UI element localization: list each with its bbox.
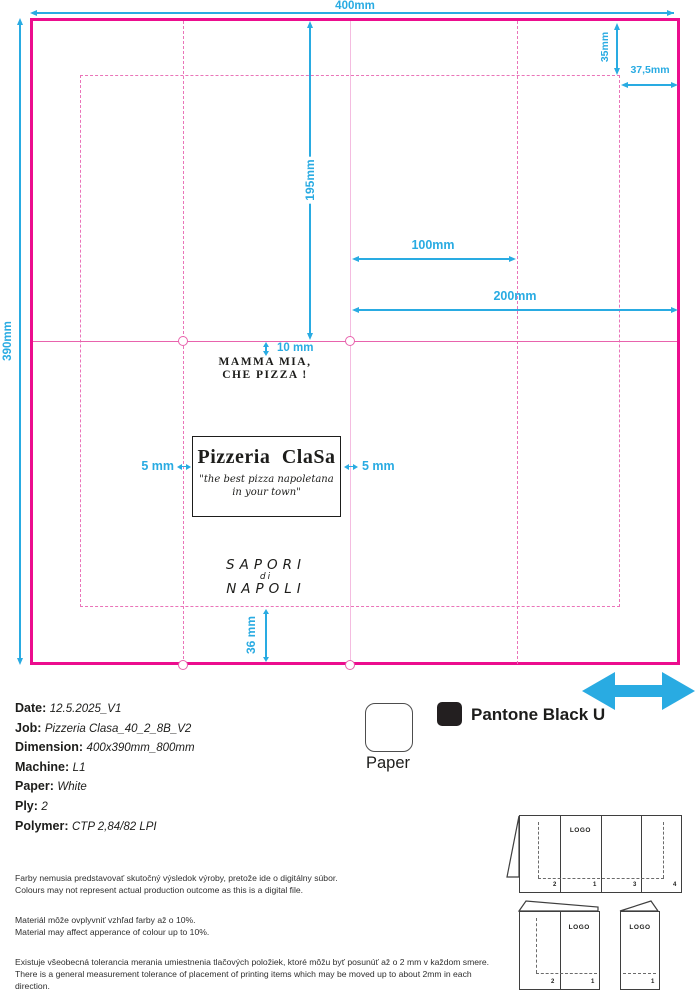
- arrow-right-icon: [509, 256, 516, 262]
- dim-37-5-label: 37,5mm: [620, 64, 680, 76]
- disclaimer-colour: Farby nemusia predstavovať skutočný výsl…: [15, 873, 495, 896]
- logo-tagline-line2: in your town": [193, 486, 340, 499]
- dim-400-shaft: [36, 12, 674, 14]
- spec-block: Date: 12.5.2025_V1 Job: Pizzeria Clasa_4…: [15, 702, 345, 839]
- spec-row-ply: Ply: 2: [15, 800, 345, 814]
- panel-number: 2: [551, 979, 554, 985]
- spec-value: 2: [41, 801, 47, 813]
- spec-label: Dimension:: [15, 740, 83, 754]
- spec-row-date: Date: 12.5.2025_V1: [15, 702, 345, 716]
- logo-title: Pizzeria ClaSa: [193, 446, 340, 469]
- panel-number: 1: [593, 882, 596, 888]
- fold-dash-horizontal: [536, 973, 597, 974]
- spec-row-job: Job: Pizzeria Clasa_40_2_8B_V2: [15, 722, 345, 736]
- dim-390-label: 390mm: [2, 321, 14, 361]
- fold-dash-horizontal: [538, 878, 664, 879]
- dim-195-label: 195mm: [303, 156, 317, 203]
- spec-label: Machine:: [15, 760, 69, 774]
- spec-value: White: [57, 781, 86, 793]
- fold-diagram-folded: LOGO 1: [620, 911, 660, 990]
- diagram-logo-label: LOGO: [560, 827, 600, 834]
- disclaimer-en: Material may affect apperance of colour …: [15, 927, 495, 939]
- spec-value: 400x390mm_800mm: [87, 742, 195, 754]
- arrow-down-icon: [614, 68, 620, 75]
- fold-dash-horizontal: [623, 973, 656, 974]
- dim-100-shaft: [358, 258, 510, 260]
- disclaimer-sk: Farby nemusia predstavovať skutočný výsl…: [15, 873, 495, 885]
- paper-label: Paper: [353, 754, 423, 773]
- middle-fold-line: [33, 341, 677, 343]
- slogan-line1: MAMMA MIA,: [165, 356, 365, 369]
- arrow-down-icon: [307, 333, 313, 340]
- back-text-line3: NAPOLI: [196, 582, 336, 596]
- dim-36-shaft: [265, 614, 267, 658]
- arrow-right-icon: [186, 464, 191, 470]
- pantone-swatch: [437, 702, 462, 726]
- dim-200-shaft: [358, 309, 672, 311]
- panel-divider: [601, 816, 602, 892]
- disclaimer-material: Materiál môže ovplyvniť vzhľad farby až …: [15, 915, 495, 938]
- spec-value: CTP 2,84/82 LPI: [72, 821, 157, 833]
- dim-10-label: 10 mm: [277, 342, 313, 354]
- pantone-label: Pantone Black U: [471, 705, 605, 725]
- panel-divider: [641, 816, 642, 892]
- spec-row-dimension: Dimension: 400x390mm_800mm: [15, 741, 345, 755]
- fold-dash-vertical: [663, 822, 664, 878]
- fold-dash-vertical: [538, 822, 539, 878]
- arrow-right-icon: [671, 307, 678, 313]
- paper-swatch: [365, 703, 413, 752]
- dim-200-label: 200mm: [465, 289, 565, 303]
- back-text-line1: SAPORI: [196, 558, 336, 572]
- logo-tagline-line1: "the best pizza napoletana: [193, 473, 340, 486]
- disclaimer-tolerance: Existuje všeobecná tolerancia merania um…: [15, 957, 495, 992]
- spec-label: Job:: [15, 721, 41, 735]
- disclaimer-block: Farby nemusia predstavovať skutočný výsl…: [15, 873, 495, 1000]
- arrow-right-icon: [353, 464, 358, 470]
- dim-35-label: 35mm: [599, 32, 611, 62]
- panel-number: 1: [651, 979, 654, 985]
- registration-circle: [345, 336, 355, 346]
- spec-label: Polymer:: [15, 819, 69, 833]
- disclaimer-en: There is a general measurement tolerance…: [15, 969, 495, 992]
- dim-36-label: 36 mm: [244, 614, 258, 656]
- spec-value: Pizzeria Clasa_40_2_8B_V2: [45, 723, 191, 735]
- spec-value: L1: [73, 762, 86, 774]
- resize-arrow-right-head: [662, 672, 695, 710]
- diagram-logo-label: LOGO: [560, 924, 600, 931]
- disclaimer-sk: Existuje všeobecná tolerancia merania um…: [15, 957, 495, 969]
- spec-row-paper: Paper: White: [15, 780, 345, 794]
- dim-390-shaft: [19, 24, 21, 659]
- spec-label: Ply:: [15, 799, 38, 813]
- dim-5-right-label: 5 mm: [362, 459, 395, 473]
- panel-number: 3: [633, 882, 636, 888]
- logo-box: Pizzeria ClaSa "the best pizza napoletan…: [192, 436, 341, 517]
- back-text: SAPORI di NAPOLI: [196, 558, 336, 596]
- arrow-down-icon: [263, 657, 269, 662]
- dim-37-5-shaft: [627, 84, 673, 86]
- fold-line-vertical-right: [517, 21, 518, 664]
- panel-number: 2: [553, 882, 556, 888]
- spec-label: Date:: [15, 701, 46, 715]
- registration-circle: [345, 660, 355, 670]
- slogan-line2: CHE PIZZA !: [165, 369, 365, 382]
- arrow-down-icon: [17, 658, 23, 665]
- disclaimer-sk: Materiál môže ovplyvniť vzhľad farby až …: [15, 915, 495, 927]
- registration-circle: [178, 660, 188, 670]
- dim-400-label: 400mm: [30, 0, 680, 12]
- fold-dash-vertical: [536, 918, 537, 973]
- print-proof-sheet: 400mm 390mm 195mm 35mm 37,5mm 100mm 200m…: [0, 0, 700, 1000]
- panel-number: 4: [673, 882, 676, 888]
- resize-arrow-bar: [610, 685, 667, 697]
- disclaimer-en: Colours may not represent actual product…: [15, 885, 495, 897]
- spec-row-machine: Machine: L1: [15, 761, 345, 775]
- slogan-text: MAMMA MIA, CHE PIZZA !: [165, 356, 365, 381]
- fold-diagram-unfolded: LOGO 2 1 3 4: [519, 815, 682, 893]
- dim-100-label: 100mm: [383, 238, 483, 252]
- fold-diagram-bifold: LOGO 2 1: [519, 911, 600, 990]
- dim-35-shaft: [616, 29, 618, 69]
- registration-circle: [178, 336, 188, 346]
- spec-row-polymer: Polymer: CTP 2,84/82 LPI: [15, 820, 345, 834]
- diagram-logo-label: LOGO: [621, 924, 659, 931]
- dim-5-left-label: 5 mm: [130, 459, 174, 473]
- arrow-right-icon: [671, 82, 678, 88]
- spec-label: Paper:: [15, 779, 54, 793]
- spec-value: 12.5.2025_V1: [50, 703, 122, 715]
- panel-number: 1: [591, 979, 594, 985]
